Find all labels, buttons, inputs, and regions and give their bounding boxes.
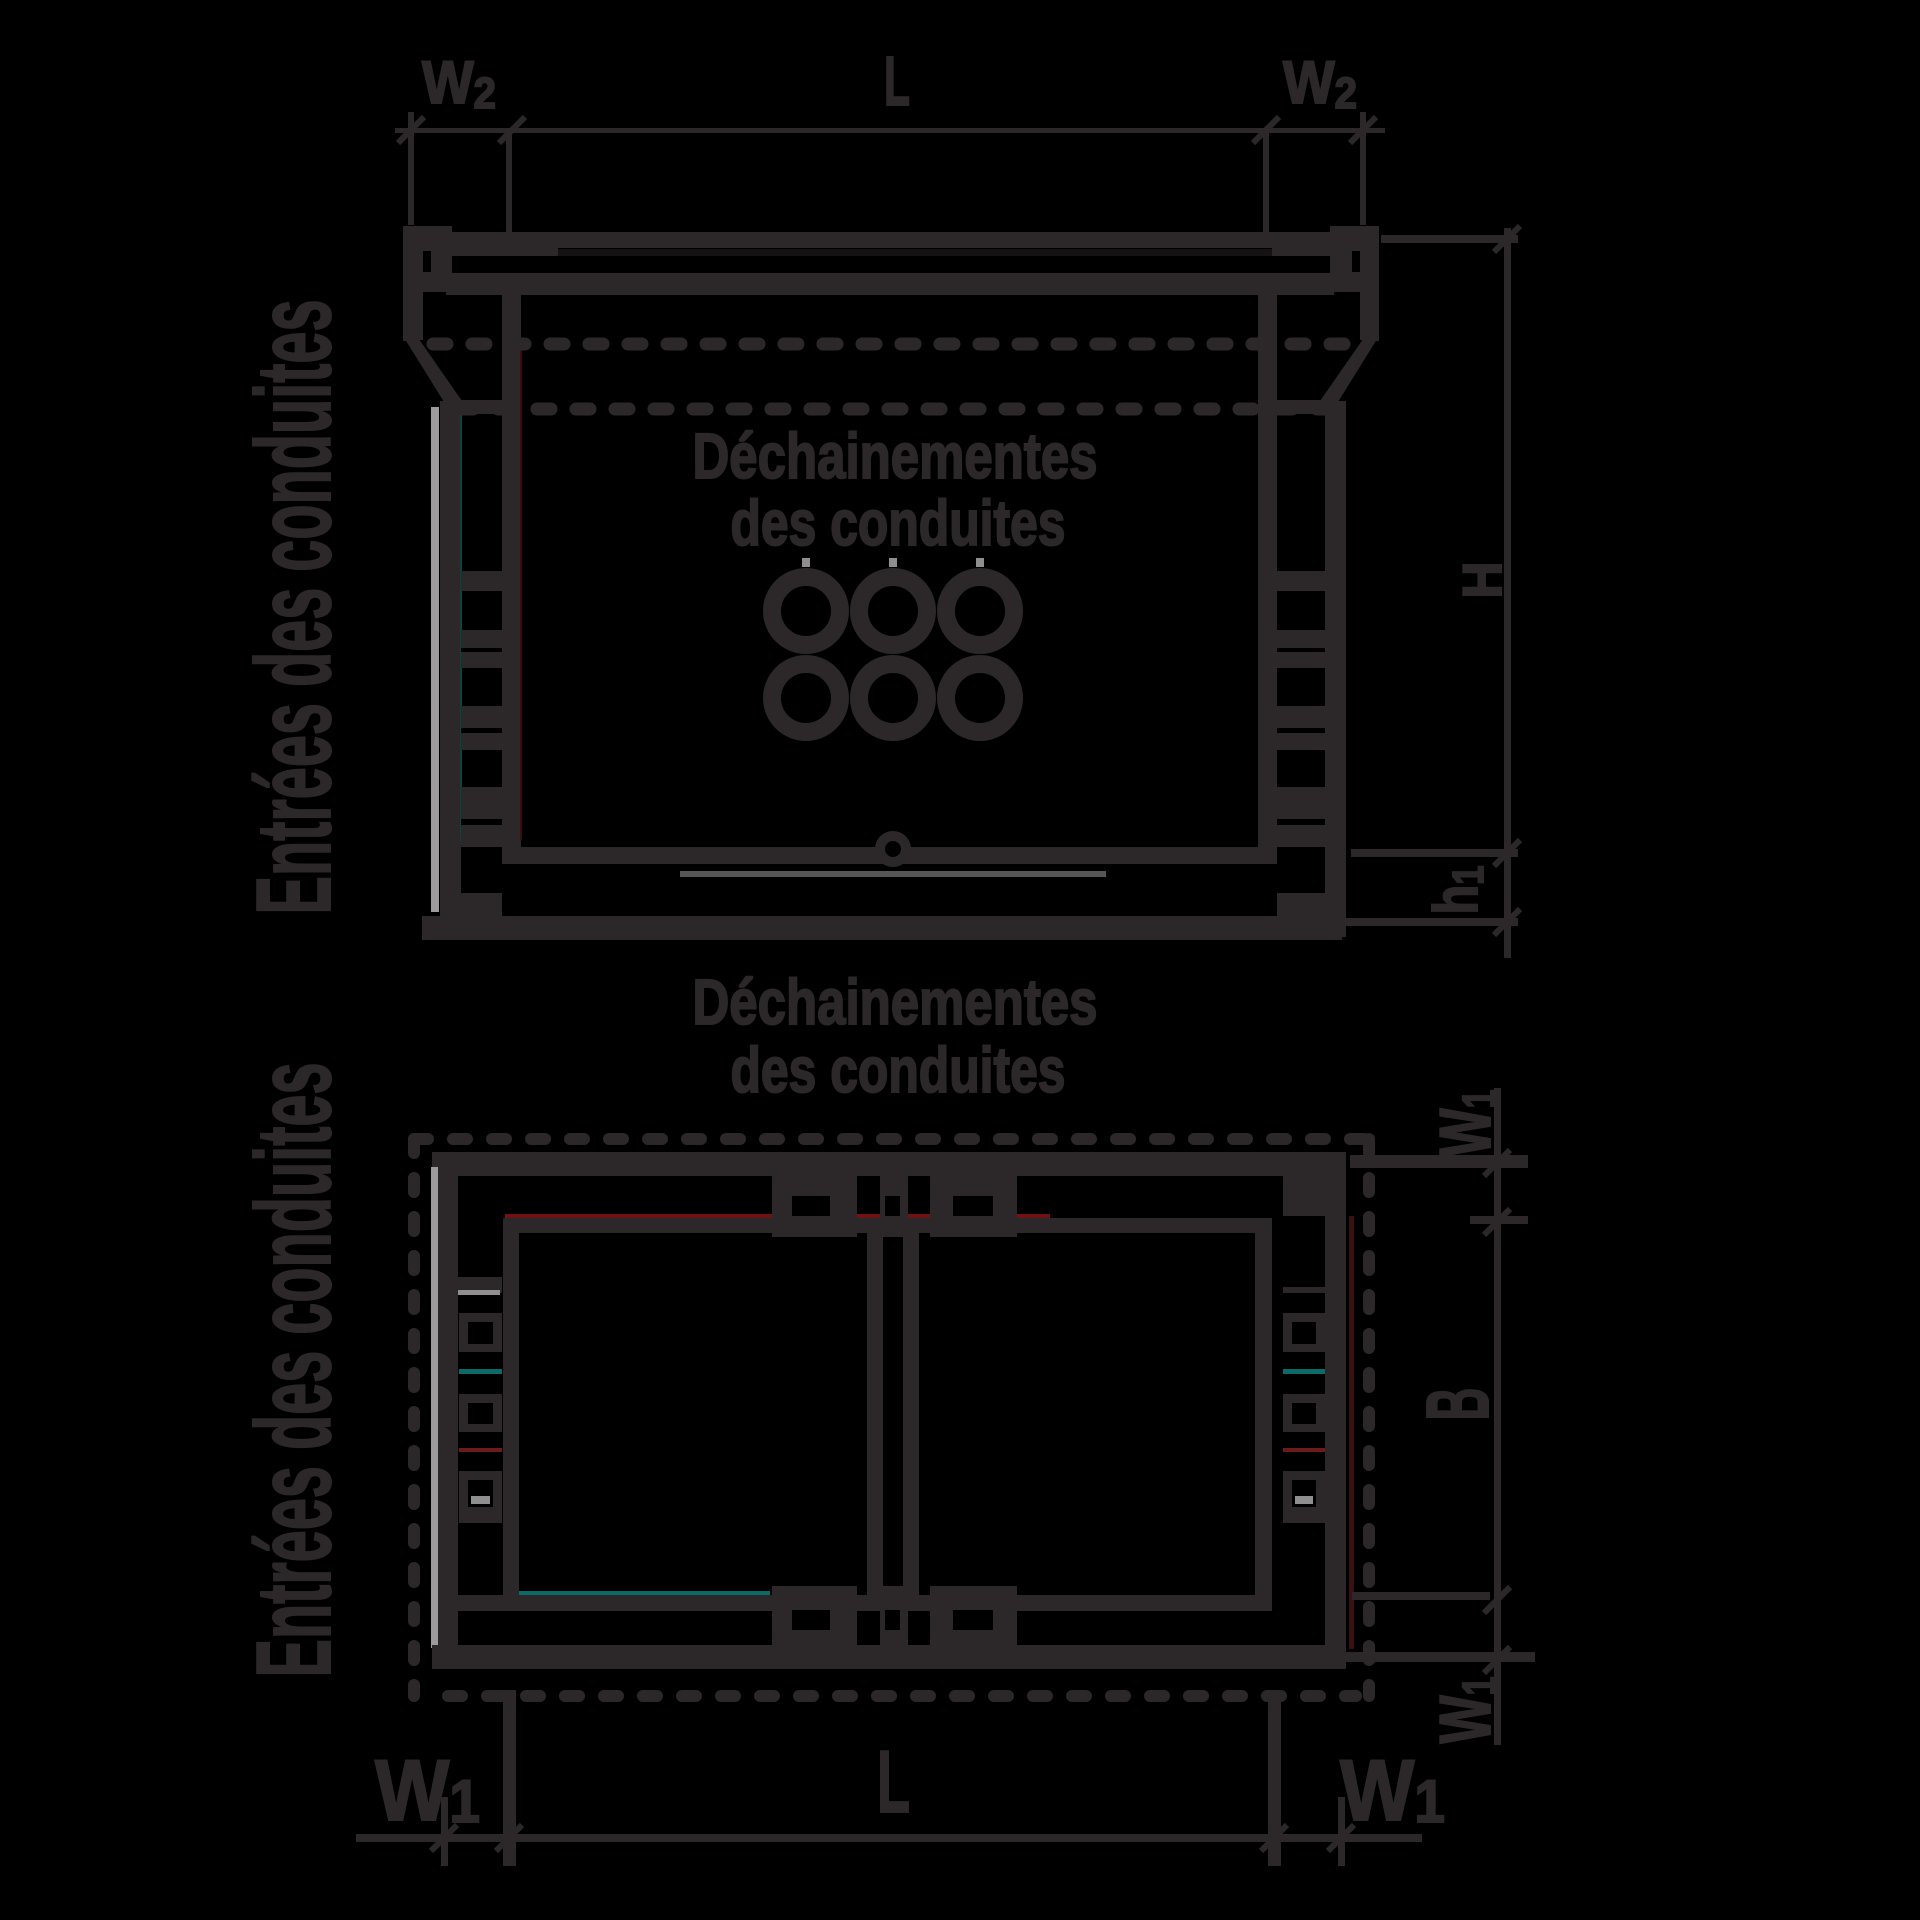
svg-text:Déchainementes: Déchainementes xyxy=(693,420,1098,492)
svg-text:Entrées des conduites: Entrées des conduites xyxy=(235,300,353,915)
svg-text:des conduites: des conduites xyxy=(731,1034,1066,1106)
svg-text:B: B xyxy=(1408,1388,1507,1421)
svg-text:H: H xyxy=(1451,562,1513,599)
svg-text:Déchainementes: Déchainementes xyxy=(693,966,1098,1038)
svg-text:L: L xyxy=(884,42,910,120)
svg-text:Entrées des conduites: Entrées des conduites xyxy=(235,1063,353,1678)
svg-text:des conduites: des conduites xyxy=(731,487,1066,559)
svg-text:L: L xyxy=(877,1732,910,1831)
